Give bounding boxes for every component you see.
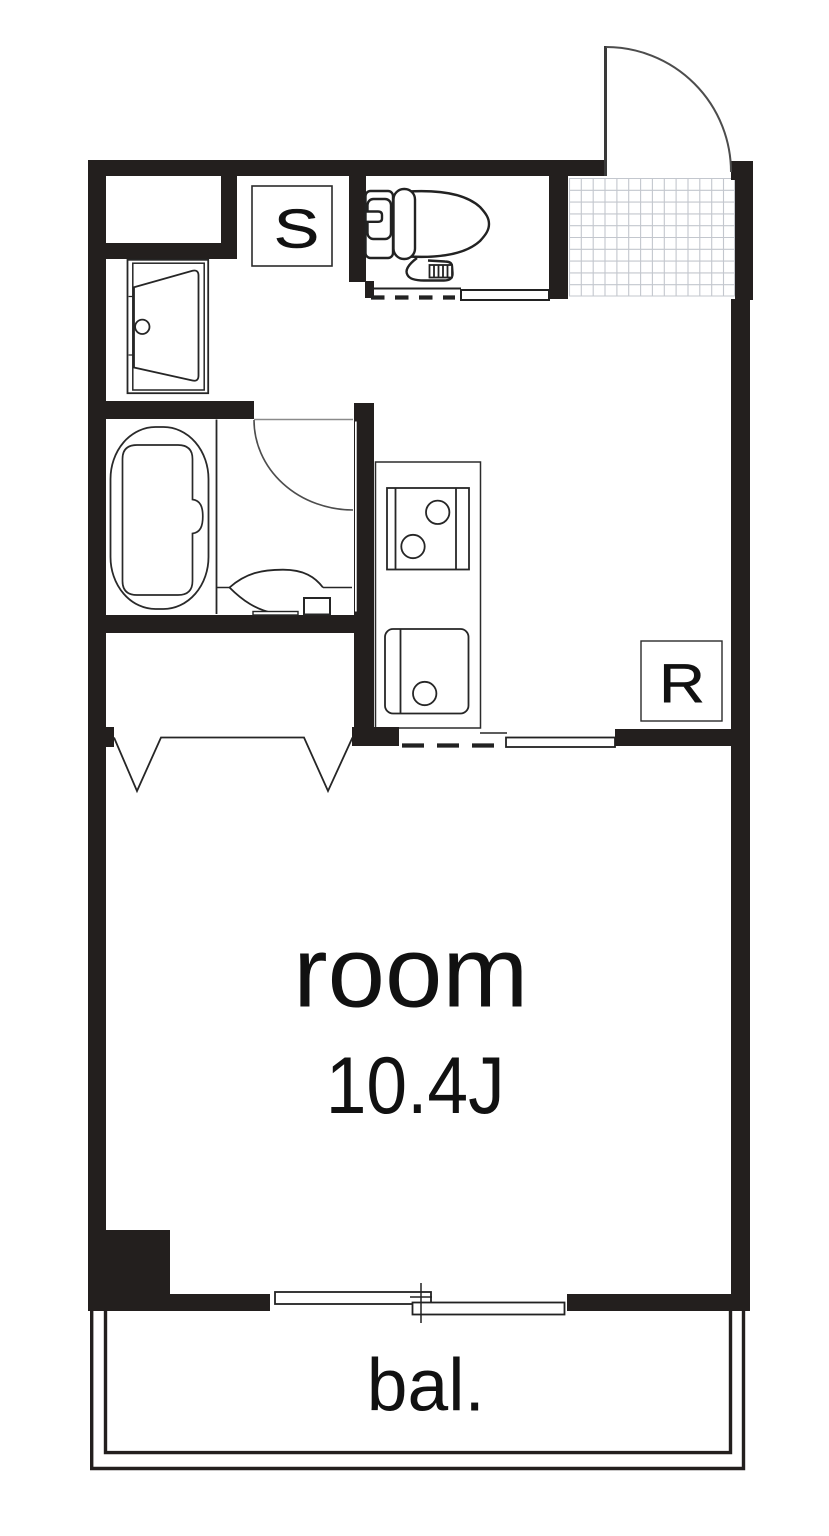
svg-text:R: R xyxy=(659,652,705,714)
svg-text:S: S xyxy=(274,198,320,260)
svg-text:bal.: bal. xyxy=(367,1344,485,1427)
svg-text:10.4J: 10.4J xyxy=(326,1041,505,1131)
svg-text:room: room xyxy=(293,917,528,1029)
